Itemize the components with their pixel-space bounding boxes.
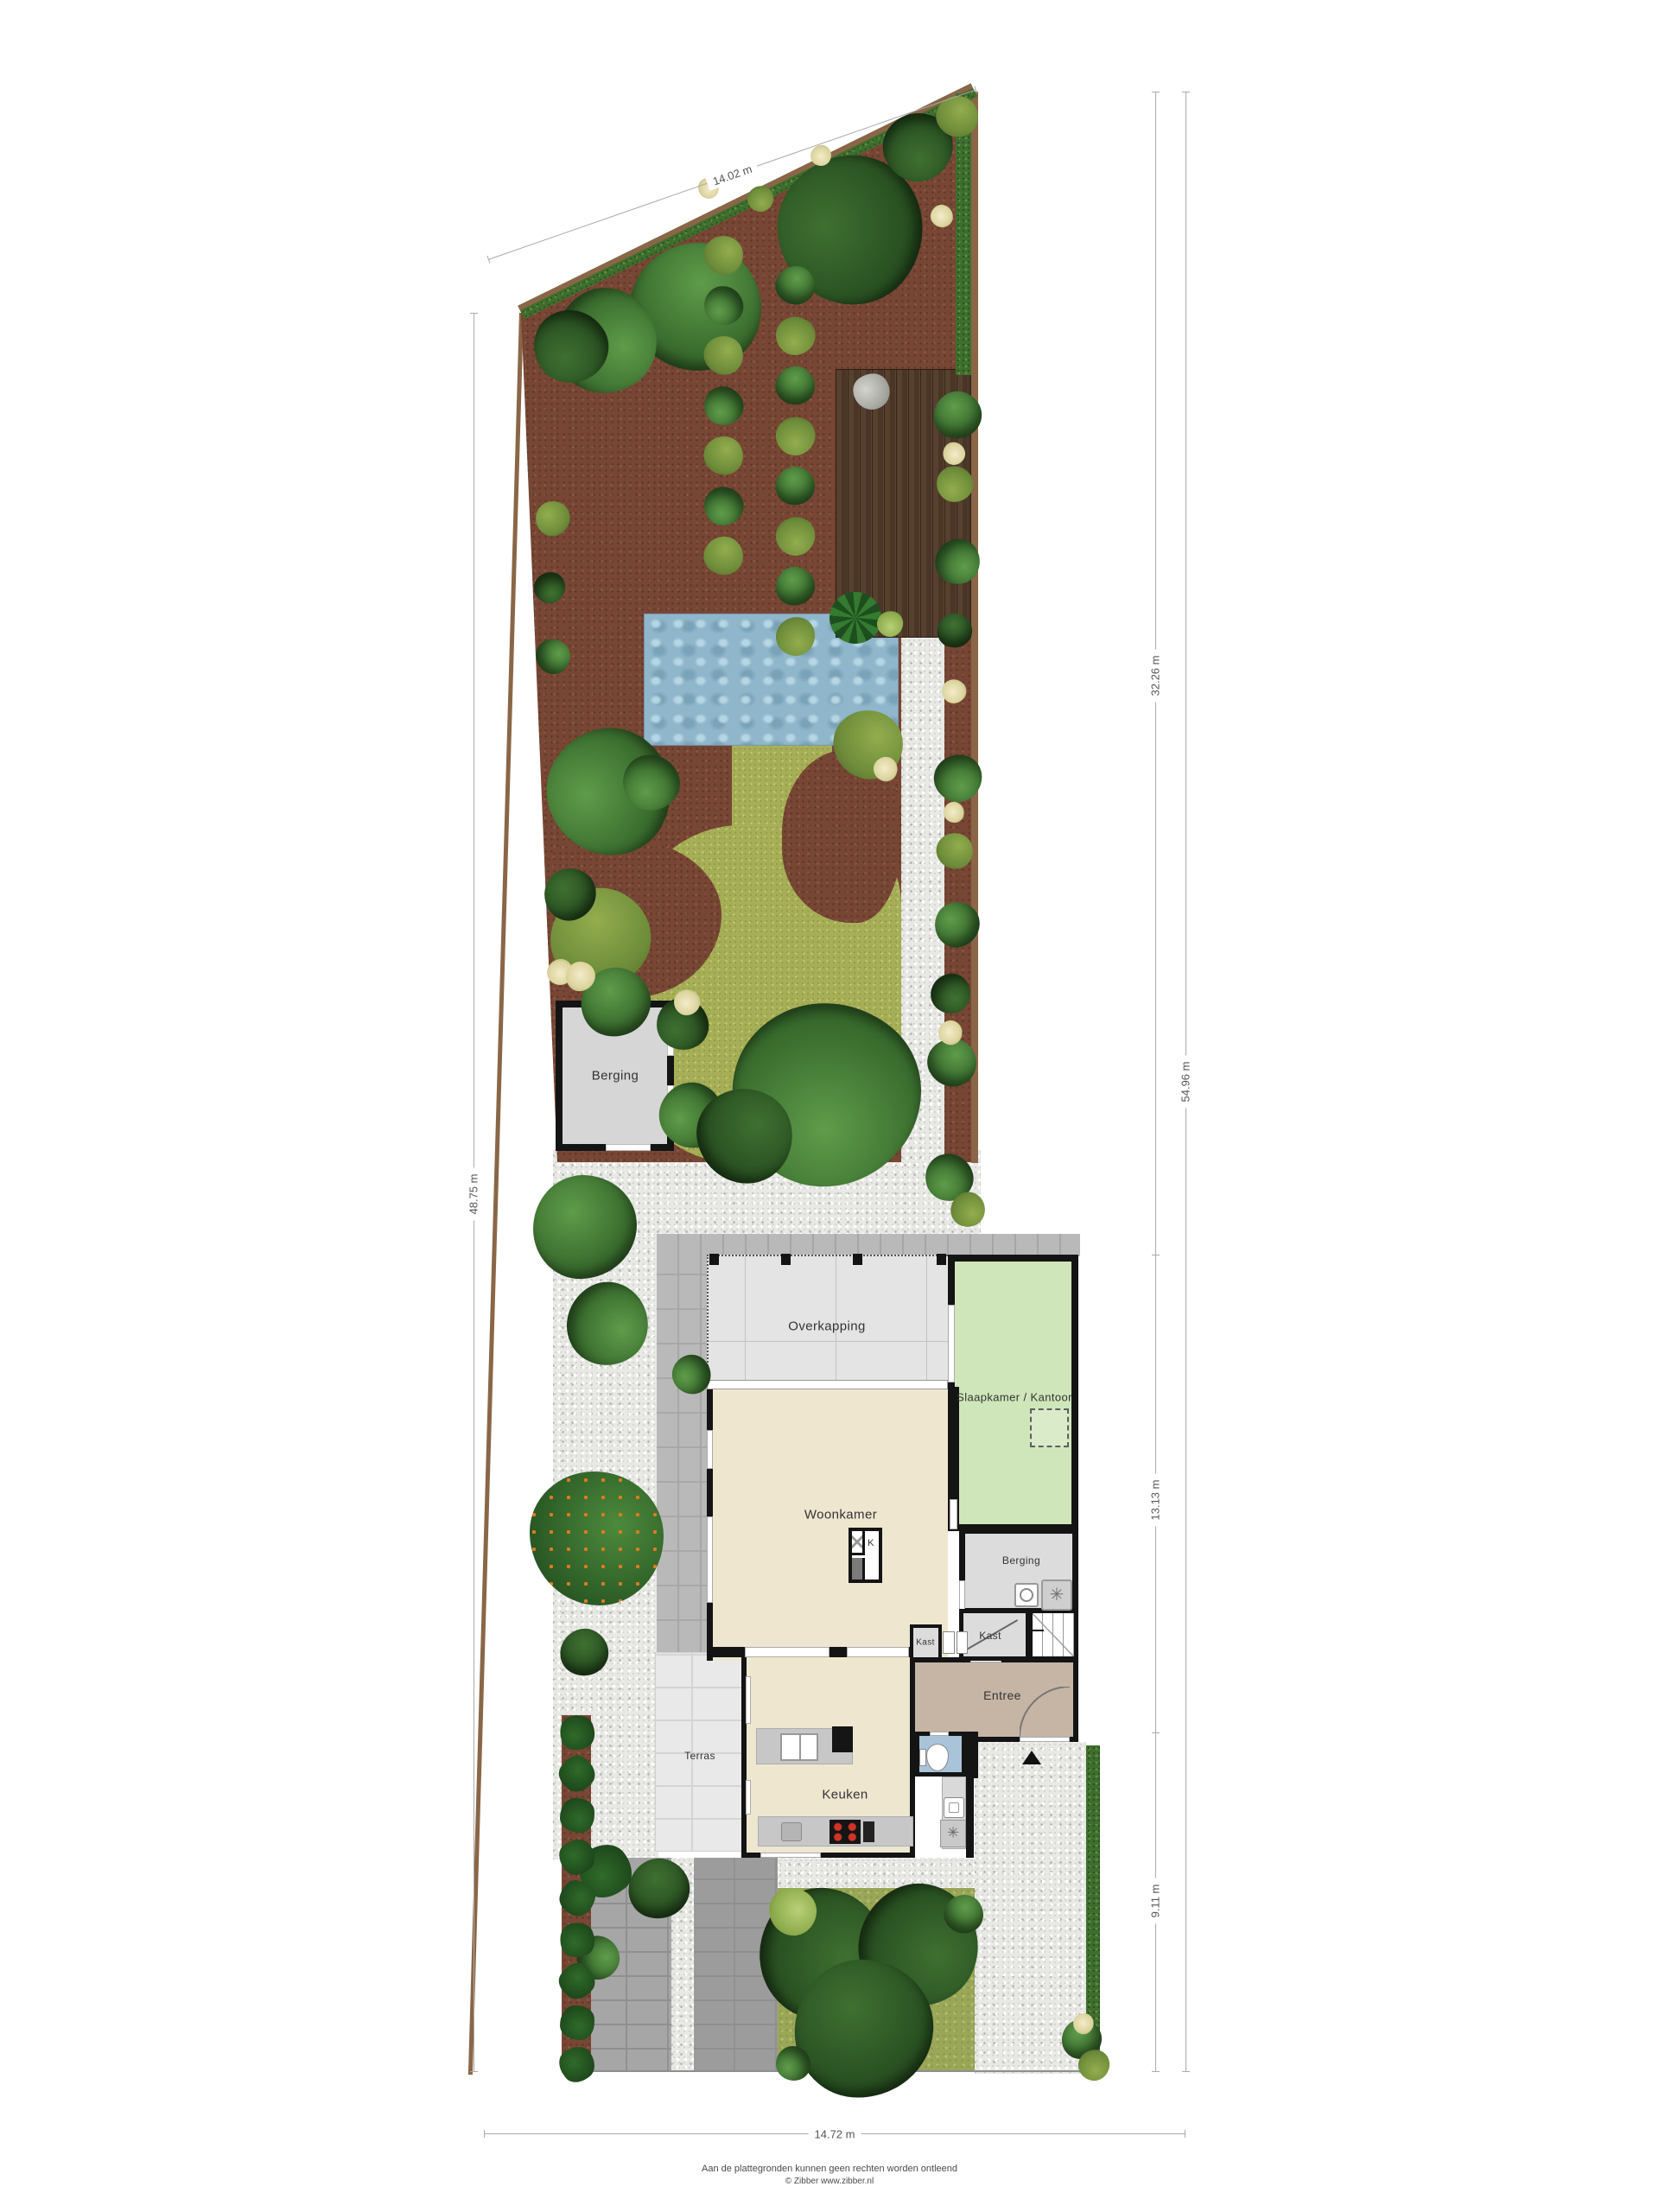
small-appliance-icon xyxy=(863,1821,874,1842)
dimension-right-upper-label: 32.26 m xyxy=(1148,650,1163,702)
plant xyxy=(928,748,987,807)
woonkamer-right-wall xyxy=(948,1387,959,1531)
plant xyxy=(772,563,819,610)
plant xyxy=(605,216,787,398)
dimension-right-inner xyxy=(1155,92,1156,2072)
footer-credit: © Zibber www.zibber.nl xyxy=(0,2177,1659,2186)
door-opening xyxy=(959,1580,965,1611)
plant xyxy=(531,569,569,607)
terrace-door-opening xyxy=(746,1780,751,1815)
hedge-right-south xyxy=(1086,1745,1100,2072)
door-opening xyxy=(950,1499,957,1529)
plant xyxy=(928,385,987,444)
ventilation-icon xyxy=(940,1820,966,1847)
flower-cluster xyxy=(938,438,969,469)
window xyxy=(707,1430,713,1469)
plant xyxy=(930,897,984,951)
door-opening xyxy=(930,1732,949,1736)
dimension-left-label: 48.75 m xyxy=(467,1168,481,1221)
plant xyxy=(696,429,749,481)
fireplace-label: K xyxy=(868,1538,874,1548)
plant xyxy=(700,282,746,327)
sliding-glass-wall xyxy=(707,1380,948,1389)
plant xyxy=(767,257,822,312)
window-opening xyxy=(847,1647,909,1657)
post xyxy=(709,1254,719,1265)
plant xyxy=(696,479,751,533)
post xyxy=(853,1254,862,1265)
flower-cluster xyxy=(937,674,971,709)
front-door-opening xyxy=(1020,1737,1070,1742)
plant xyxy=(524,705,695,876)
dryer-icon xyxy=(1041,1580,1072,1611)
plant xyxy=(931,828,978,874)
shed-label: Berging xyxy=(592,1069,639,1084)
skylight xyxy=(1030,1408,1069,1447)
room-woonkamer xyxy=(707,1387,948,1661)
gravel-gap xyxy=(671,1858,694,2072)
footer: Aan de plattegronden kunnen geen rechten… xyxy=(0,2164,1659,2186)
paver-drive-right xyxy=(694,1858,778,2072)
window-opening xyxy=(760,1853,821,1858)
palm-plant xyxy=(823,586,887,649)
flower-cluster xyxy=(941,799,967,825)
plant xyxy=(829,705,908,785)
label-terras: Terras xyxy=(684,1750,715,1762)
plant xyxy=(746,184,776,214)
plant xyxy=(520,296,620,396)
plant xyxy=(702,233,744,276)
paver-drive-left xyxy=(586,1858,671,2072)
cooktop-icon xyxy=(829,1820,861,1844)
plant xyxy=(654,995,710,1052)
plot-bottom-line xyxy=(566,2070,1100,2072)
plant xyxy=(773,614,817,658)
sink-icon xyxy=(943,1631,955,1654)
paver-band-top xyxy=(657,1234,1080,1256)
rock xyxy=(847,366,898,417)
toilet-icon xyxy=(919,1749,926,1766)
gravel-area-mid xyxy=(553,1149,981,1237)
stairs xyxy=(1028,1609,1078,1661)
plant xyxy=(768,409,822,462)
footer-disclaimer: Aan de plattegronden kunnen geen rechten… xyxy=(0,2164,1659,2174)
plant xyxy=(929,88,985,144)
plant xyxy=(699,331,748,380)
kitchen-column xyxy=(832,1726,853,1752)
gravel-driveway-right xyxy=(975,1742,1086,2074)
plant xyxy=(767,358,822,412)
dimension-bottom: 14.72 m xyxy=(484,2133,1185,2134)
flower-cluster xyxy=(869,753,903,786)
stairs-direction-arrow xyxy=(1032,1630,1044,1631)
plant xyxy=(930,534,984,588)
window xyxy=(948,1305,955,1382)
flower-cluster xyxy=(934,1016,968,1050)
label-kast-left: Kast xyxy=(916,1638,935,1648)
plant xyxy=(538,862,601,925)
plant xyxy=(931,607,977,653)
label-entree: Entree xyxy=(983,1688,1021,1702)
window xyxy=(746,1676,751,1724)
washing-machine-icon xyxy=(1014,1583,1039,1607)
dimension-bottom-label: 14.72 m xyxy=(809,2126,861,2141)
boiler-icon xyxy=(944,1797,964,1818)
planting-bed-south xyxy=(778,1888,975,2072)
garden-plants xyxy=(518,86,978,1162)
plant xyxy=(537,874,664,1001)
plant xyxy=(872,101,963,193)
label-woonkamer: Woonkamer xyxy=(804,1508,877,1522)
paver-band-left xyxy=(657,1256,707,1654)
flower-cluster xyxy=(669,984,705,1020)
label-keuken: Keuken xyxy=(822,1788,868,1802)
plant xyxy=(874,607,906,639)
flower-cluster xyxy=(929,203,955,229)
dimension-right-total-label: 54.96 m xyxy=(1179,1056,1193,1109)
window-opening xyxy=(745,1647,829,1657)
dimension-right-middle-label: 13.13 m xyxy=(1148,1474,1163,1527)
door-arc-icon xyxy=(1020,1687,1070,1737)
entrance-arrow-icon xyxy=(1022,1751,1041,1764)
kitchen-sink-icon xyxy=(780,1733,818,1761)
fireplace xyxy=(849,1528,882,1583)
plant xyxy=(650,1073,733,1156)
dimension-right-lower-label: 9.11 m xyxy=(1148,1878,1163,1924)
plant xyxy=(770,511,820,561)
plant xyxy=(927,970,973,1016)
flower-cluster xyxy=(564,960,596,992)
woonkamer-south-wall xyxy=(707,1647,910,1657)
house-right-wall xyxy=(966,1777,974,1858)
plant xyxy=(696,528,751,583)
house-right-wall xyxy=(966,1732,978,1778)
garden-area: Berging xyxy=(518,86,978,1162)
mulch-strip-left-south xyxy=(562,1715,591,2072)
label-berging: Berging xyxy=(1002,1554,1040,1567)
plant xyxy=(533,637,573,677)
post xyxy=(937,1254,946,1265)
plant xyxy=(920,1031,985,1096)
plant xyxy=(930,459,980,509)
label-slaapkamer: Slaapkamer / Kantoor xyxy=(957,1391,1072,1404)
label-kast-right: Kast xyxy=(979,1630,1001,1642)
plant xyxy=(769,460,821,512)
flower-cluster xyxy=(545,957,575,987)
plant xyxy=(531,496,575,540)
label-overkapping: Overkapping xyxy=(788,1319,865,1334)
post xyxy=(781,1254,791,1265)
sink-icon xyxy=(957,1631,968,1654)
plant xyxy=(575,962,657,1043)
plant xyxy=(532,269,677,413)
counter-sink-icon xyxy=(781,1822,802,1841)
window xyxy=(707,1516,713,1603)
plant xyxy=(747,125,955,333)
plant xyxy=(767,308,823,363)
site-plan: Berging K xyxy=(0,0,1659,2212)
plant xyxy=(613,745,688,819)
plant xyxy=(697,379,748,430)
